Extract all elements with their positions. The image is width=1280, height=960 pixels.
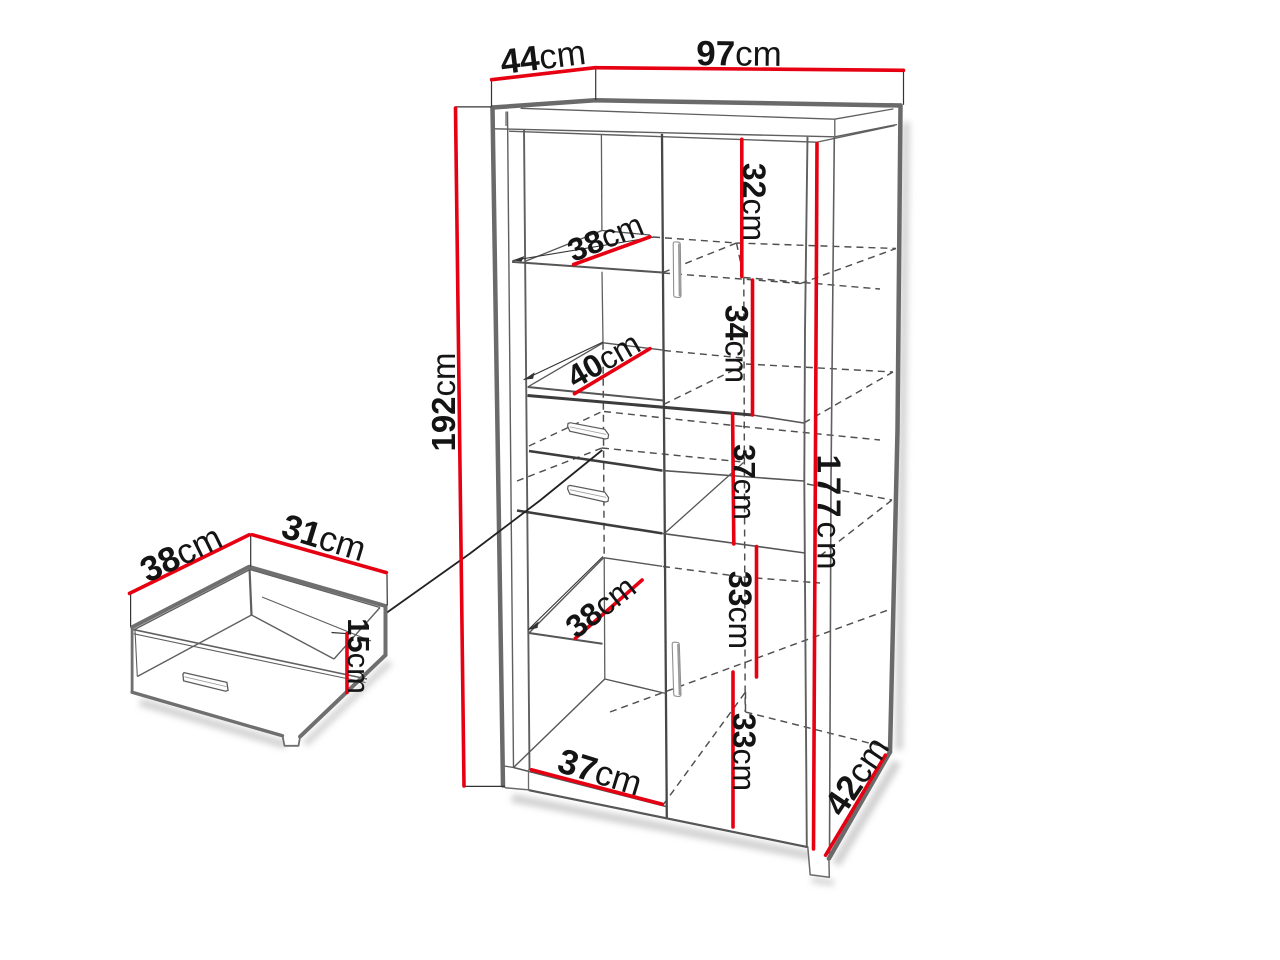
svg-text:15cm: 15cm	[341, 618, 376, 694]
svg-text:33cm: 33cm	[726, 713, 762, 791]
svg-text:37cm: 37cm	[727, 444, 762, 520]
svg-text:192cm: 192cm	[425, 352, 462, 451]
svg-text:33cm: 33cm	[722, 571, 758, 649]
svg-text:97cm: 97cm	[696, 34, 782, 74]
svg-text:177cm: 177cm	[811, 454, 848, 573]
svg-text:34cm: 34cm	[719, 305, 755, 383]
svg-text:32cm: 32cm	[736, 163, 772, 241]
